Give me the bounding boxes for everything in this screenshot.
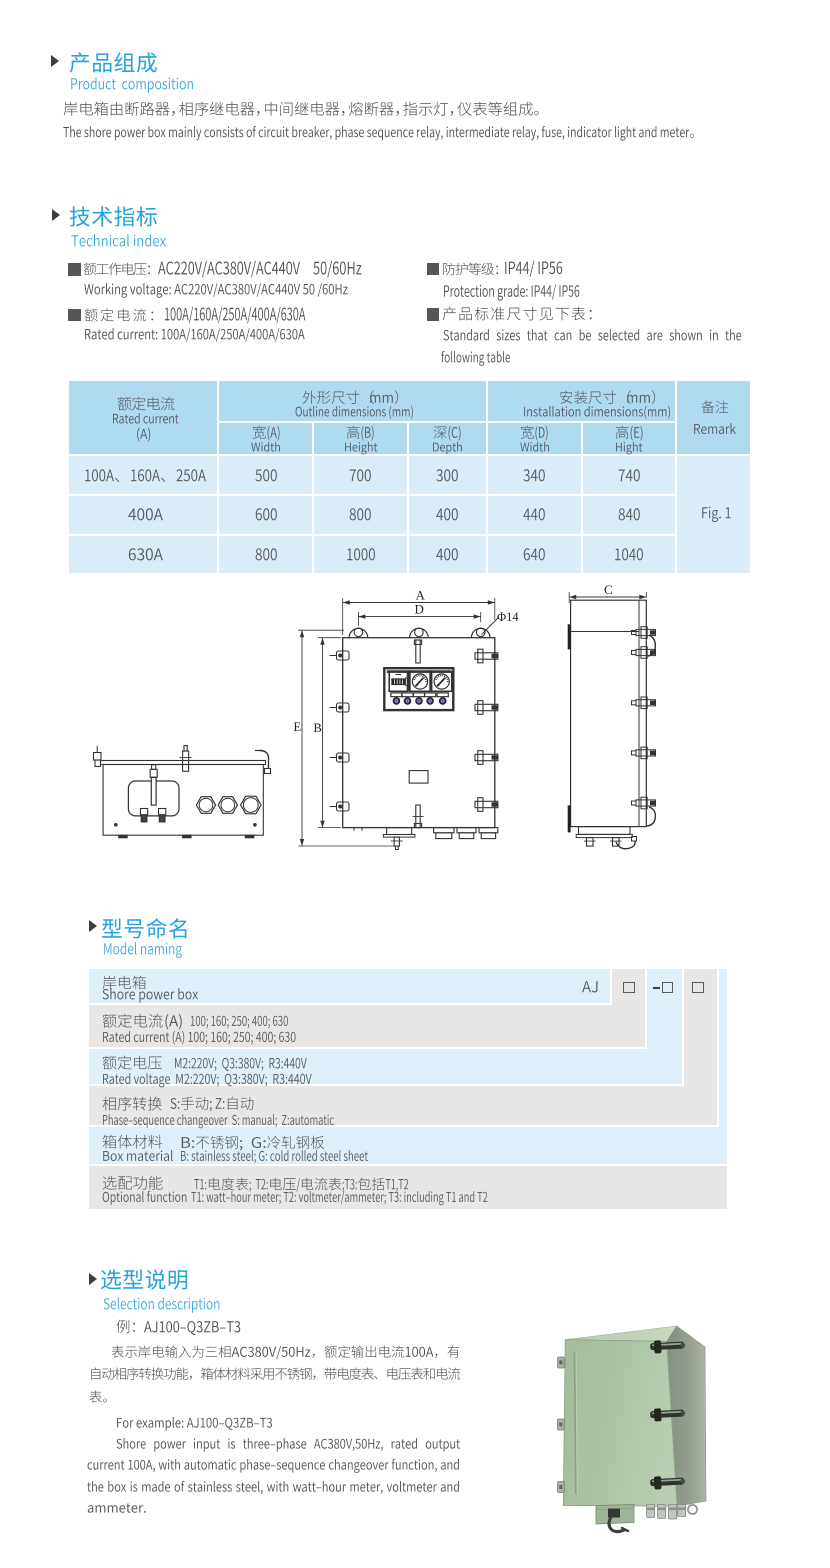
svg-text:A: A bbox=[416, 588, 426, 603]
svg-text:Φ14: Φ14 bbox=[497, 610, 519, 624]
svg-text:B: B bbox=[314, 721, 322, 735]
svg-text:C: C bbox=[604, 585, 613, 597]
svg-text:E: E bbox=[294, 720, 302, 734]
svg-text:D: D bbox=[415, 602, 424, 617]
